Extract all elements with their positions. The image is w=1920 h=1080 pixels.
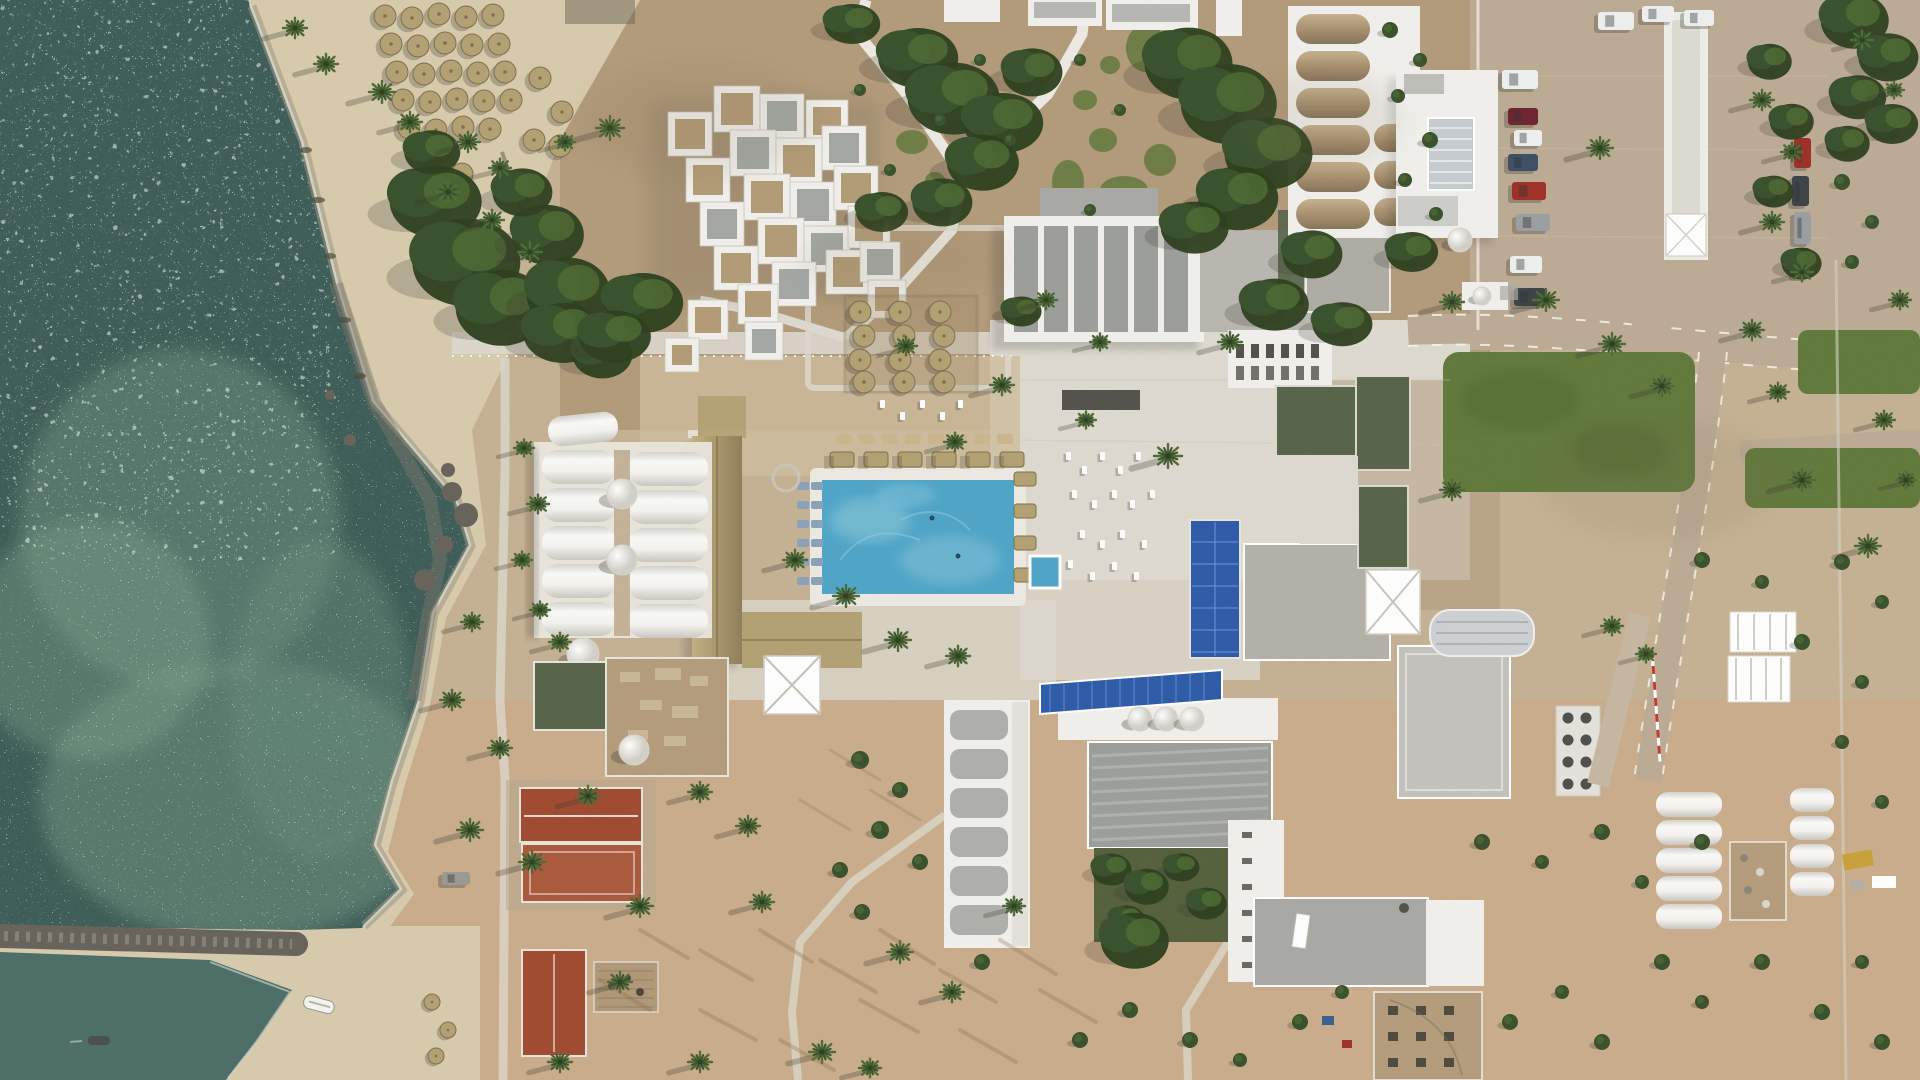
photo-grain (0, 0, 1920, 1080)
resort-aerial-scene (0, 0, 1920, 1080)
scene-layers (0, 0, 1920, 1080)
aerial-photo-frame (0, 0, 1920, 1080)
